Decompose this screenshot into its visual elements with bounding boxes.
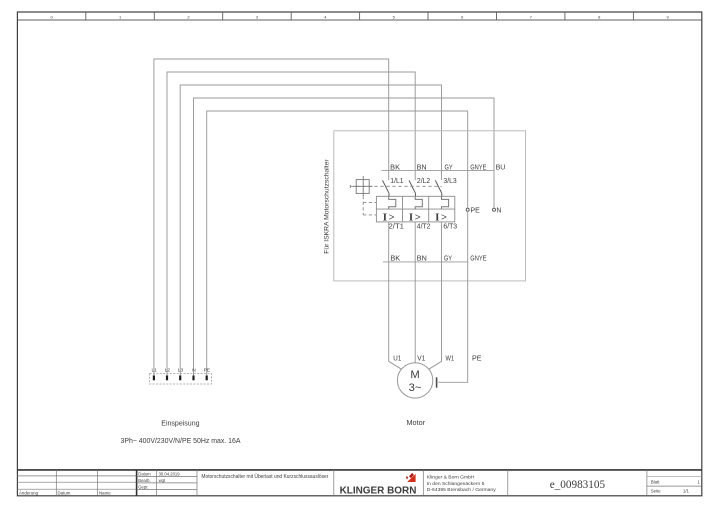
svg-text:PE: PE bbox=[472, 355, 482, 362]
svg-text:Änderung: Änderung bbox=[19, 490, 39, 495]
svg-text:L1: L1 bbox=[152, 368, 158, 374]
svg-text:BU: BU bbox=[496, 164, 506, 171]
svg-text:BN: BN bbox=[417, 164, 427, 171]
svg-text:3/L3: 3/L3 bbox=[443, 178, 456, 185]
svg-text:V1: V1 bbox=[417, 355, 425, 362]
svg-text:W1: W1 bbox=[446, 355, 455, 362]
svg-text:Seite: Seite bbox=[651, 488, 662, 493]
svg-text:6/T3: 6/T3 bbox=[443, 224, 457, 231]
svg-text:BK: BK bbox=[390, 256, 400, 263]
svg-text:1/1: 1/1 bbox=[683, 488, 690, 493]
svg-text:1/L1: 1/L1 bbox=[390, 178, 403, 185]
svg-text:D-64395 Brensbach / Germany: D-64395 Brensbach / Germany bbox=[427, 487, 497, 492]
svg-text:30.04.2019: 30.04.2019 bbox=[159, 472, 181, 477]
svg-text:BN: BN bbox=[417, 256, 427, 263]
svg-text:Blatt: Blatt bbox=[651, 479, 661, 484]
svg-text:L2: L2 bbox=[165, 368, 171, 374]
svg-text:Klinger & Born GmbH: Klinger & Born GmbH bbox=[427, 474, 475, 479]
svg-text:I>: I> bbox=[435, 211, 449, 223]
svg-text:Bearb.: Bearb. bbox=[138, 478, 150, 483]
svg-text:Name: Name bbox=[99, 490, 111, 495]
svg-text:M: M bbox=[410, 369, 419, 381]
svg-text:4/T2: 4/T2 bbox=[417, 224, 431, 231]
svg-text:3Ph~ 400V/230V/N/PE 50Hz max.: 3Ph~ 400V/230V/N/PE 50Hz max. 16A bbox=[121, 436, 241, 445]
svg-text:Datum: Datum bbox=[138, 472, 151, 477]
svg-text:I>: I> bbox=[383, 211, 397, 223]
svg-text:2/T1: 2/T1 bbox=[389, 224, 405, 231]
svg-text:GNYE: GNYE bbox=[470, 164, 486, 171]
svg-text:N: N bbox=[192, 368, 196, 374]
svg-text:3~: 3~ bbox=[409, 382, 422, 394]
svg-text:GY: GY bbox=[444, 256, 452, 263]
svg-text:Datum: Datum bbox=[58, 490, 71, 495]
svg-text:Motor: Motor bbox=[407, 418, 426, 427]
svg-text:GY: GY bbox=[445, 164, 453, 171]
svg-text:In den Schlangenäckern 5: In den Schlangenäckern 5 bbox=[427, 481, 485, 486]
svg-text:L3: L3 bbox=[178, 368, 184, 374]
svg-text:GNYE: GNYE bbox=[470, 256, 486, 263]
svg-text:U1: U1 bbox=[393, 355, 401, 362]
svg-text:Einspeisung: Einspeisung bbox=[161, 418, 199, 427]
svg-text:N: N bbox=[496, 207, 501, 214]
svg-text:KLINGER BORN: KLINGER BORN bbox=[340, 486, 417, 497]
svg-text:Für ISKRA Motorschutzschalter: Für ISKRA Motorschutzschalter bbox=[323, 158, 330, 253]
svg-text:e_00983105: e_00983105 bbox=[550, 477, 605, 491]
svg-text:Gepr.: Gepr. bbox=[138, 484, 148, 489]
svg-text:PE: PE bbox=[204, 368, 210, 374]
svg-text:PE: PE bbox=[470, 207, 480, 214]
svg-text:wgt: wgt bbox=[159, 478, 166, 483]
svg-text:2/L2: 2/L2 bbox=[417, 178, 430, 185]
svg-text:BK: BK bbox=[390, 164, 400, 171]
svg-text:I>: I> bbox=[409, 211, 423, 223]
svg-text:Motorschutzschalter mit Überla: Motorschutzschalter mit Überlast und Kur… bbox=[201, 473, 328, 480]
